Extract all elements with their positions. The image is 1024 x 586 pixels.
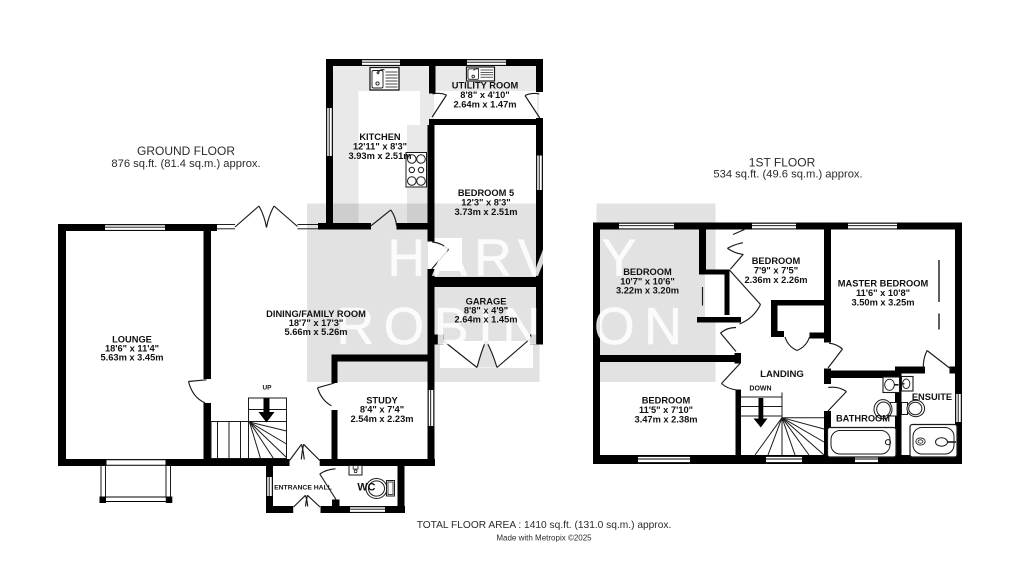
svg-text:BEDROOM: BEDROOM: [623, 267, 672, 277]
svg-text:ROBINSON: ROBINSON: [337, 298, 692, 356]
svg-text:ENTRANCE HALL: ENTRANCE HALL: [274, 485, 332, 492]
svg-text:534 sq.ft. (49.6 sq.m.) approx: 534 sq.ft. (49.6 sq.m.) approx.: [713, 168, 862, 180]
svg-text:2.54m x 2.23m: 2.54m x 2.23m: [350, 414, 413, 424]
svg-text:11'6" x 10'8": 11'6" x 10'8": [856, 288, 910, 298]
svg-text:3.22m x 3.20m: 3.22m x 3.20m: [616, 285, 679, 295]
svg-text:2.64m x 1.47m: 2.64m x 1.47m: [453, 99, 516, 109]
svg-text:3.93m x 2.51m: 3.93m x 2.51m: [348, 151, 411, 161]
svg-text:876 sq.ft. (81.4 sq.m.) approx: 876 sq.ft. (81.4 sq.m.) approx.: [111, 158, 260, 170]
svg-text:LANDING: LANDING: [760, 369, 804, 380]
svg-text:Made with Metropix ©2025: Made with Metropix ©2025: [496, 534, 592, 543]
svg-text:WC: WC: [357, 481, 375, 493]
svg-text:7'9" x 7'5": 7'9" x 7'5": [754, 265, 798, 275]
svg-text:8'4" x 7'4": 8'4" x 7'4": [360, 404, 404, 414]
svg-text:BATHROOM: BATHROOM: [836, 413, 890, 423]
svg-text:3.50m x 3.25m: 3.50m x 3.25m: [851, 297, 914, 307]
svg-text:8'8" x 4'10": 8'8" x 4'10": [460, 90, 509, 100]
svg-text:3.73m x 2.51m: 3.73m x 2.51m: [454, 207, 517, 217]
svg-text:BEDROOM: BEDROOM: [752, 256, 801, 266]
svg-text:11'5" x 7'10": 11'5" x 7'10": [639, 405, 693, 415]
svg-text:3.47m x 2.38m: 3.47m x 2.38m: [634, 414, 697, 424]
svg-text:UP: UP: [262, 385, 272, 392]
svg-text:DOWN: DOWN: [749, 386, 771, 393]
svg-text:BEDROOM: BEDROOM: [642, 395, 691, 405]
svg-text:2.64m x 1.45m: 2.64m x 1.45m: [454, 314, 517, 324]
svg-text:5.63m x 3.45m: 5.63m x 3.45m: [100, 352, 163, 362]
svg-text:BEDROOM 5: BEDROOM 5: [458, 188, 514, 198]
svg-text:ENSUITE: ENSUITE: [912, 392, 952, 402]
svg-text:MASTER BEDROOM: MASTER BEDROOM: [838, 278, 929, 288]
svg-text:GROUND FLOOR: GROUND FLOOR: [137, 144, 235, 158]
svg-text:12'3" x 8'3": 12'3" x 8'3": [461, 197, 510, 207]
svg-text:UTILITY ROOM: UTILITY ROOM: [452, 80, 519, 90]
svg-text:5.66m x 5.26m: 5.66m x 5.26m: [284, 327, 347, 337]
svg-text:TOTAL FLOOR AREA : 1410 sq.ft.: TOTAL FLOOR AREA : 1410 sq.ft. (131.0 sq…: [417, 520, 672, 531]
svg-text:HARVEY: HARVEY: [387, 230, 643, 288]
svg-text:1ST FLOOR: 1ST FLOOR: [749, 155, 816, 169]
svg-text:2.36m x 2.26m: 2.36m x 2.26m: [744, 275, 807, 285]
